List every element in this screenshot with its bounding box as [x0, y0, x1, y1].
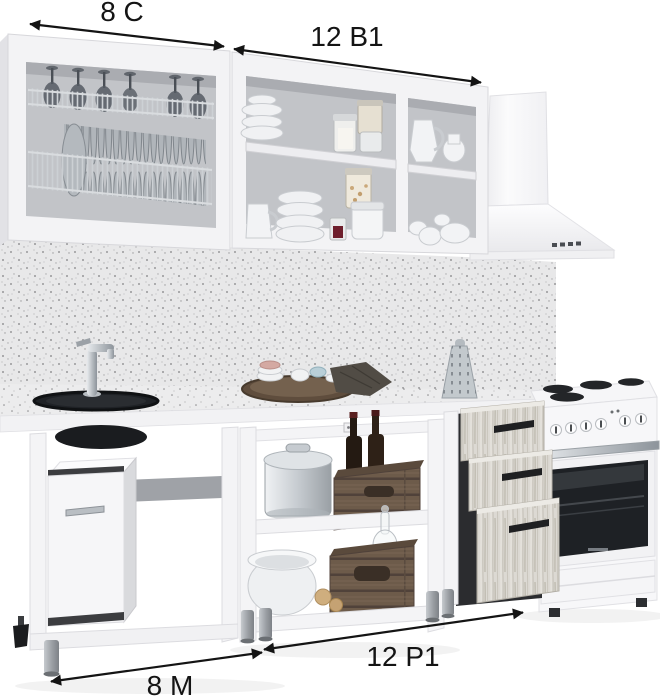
wall-cabinet-open-shelves: [232, 52, 488, 254]
left-upright: [30, 433, 46, 650]
open-shelf-base-unit: [240, 410, 444, 642]
cabinet-side-panel: [0, 34, 8, 246]
brand-mark: [588, 548, 608, 551]
leg: [442, 589, 455, 618]
serving-tray: [242, 361, 392, 402]
dimension-label-8m: 8 М: [147, 670, 194, 700]
hood-base-lip: [470, 250, 614, 260]
hood-canopy: [470, 204, 614, 252]
black-adjuster-foot: [13, 616, 29, 648]
drawer-3: [477, 498, 559, 603]
right-upright: [222, 427, 238, 642]
kitchen-scene: 8 С 12 В1 12 Р1 8 М: [0, 0, 660, 700]
wall-cabinet-dish-drainer: [0, 34, 230, 250]
leg: [259, 608, 273, 641]
mini-cabinet: [48, 458, 136, 626]
leg: [241, 610, 255, 643]
stock-pot: [264, 444, 332, 520]
dimension-label-8s: 8 С: [100, 0, 144, 27]
white-canister: [352, 206, 383, 239]
white-pitcher: [246, 204, 272, 238]
bottom-shelf: [30, 624, 238, 650]
dimension-label-12p1: 12 Р1: [366, 641, 439, 672]
top-rail: [256, 421, 428, 441]
kitchen-product-photo: 8 С 12 В1 12 Р1 8 М: [0, 0, 660, 700]
hood-chimney-duct: [486, 92, 548, 206]
carcass-left-panel: [444, 411, 458, 606]
sink-bowl-underside: [55, 425, 147, 449]
leg: [44, 640, 60, 677]
mixing-bowl: [248, 550, 316, 615]
back-rail: [125, 476, 222, 502]
leg: [426, 591, 440, 622]
dimension-label-12v1: 12 В1: [310, 21, 383, 52]
sink-base-unit: [30, 425, 238, 650]
left-upright: [240, 427, 256, 642]
three-drawer-unit: [444, 401, 559, 606]
range-hood: [470, 92, 614, 260]
